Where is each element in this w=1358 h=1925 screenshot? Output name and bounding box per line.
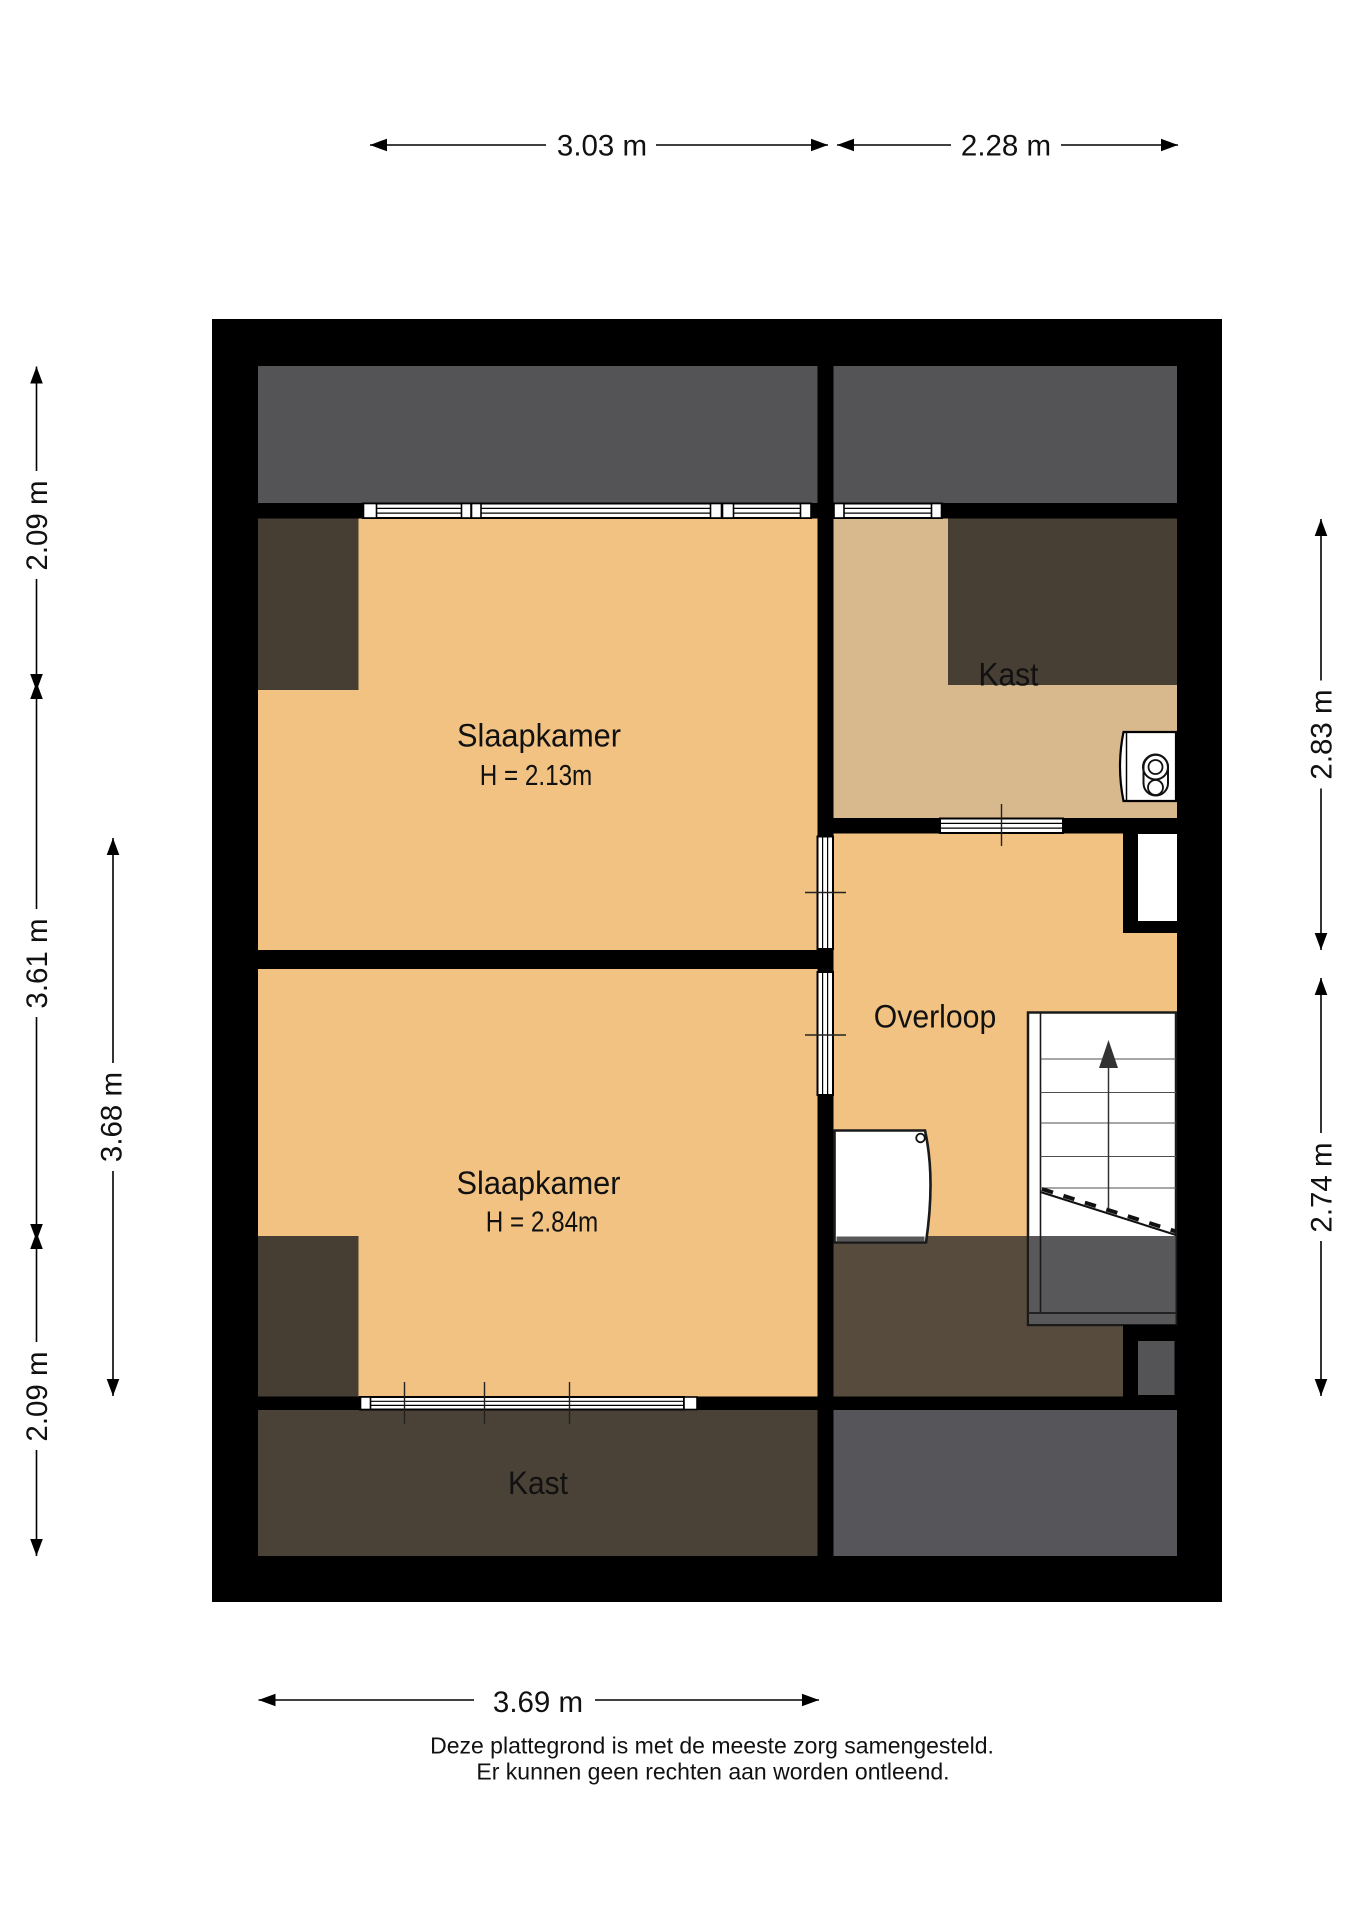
svg-text:3.68 m: 3.68 m bbox=[96, 1072, 129, 1162]
svg-text:2.74 m: 2.74 m bbox=[1306, 1142, 1339, 1232]
svg-text:Er kunnen geen rechten aan wor: Er kunnen geen rechten aan worden ontlee… bbox=[476, 1759, 949, 1785]
svg-text:Slaapkamer: Slaapkamer bbox=[457, 718, 621, 754]
svg-text:3.03 m: 3.03 m bbox=[557, 130, 647, 163]
svg-text:Deze plattegrond is met de mee: Deze plattegrond is met de meeste zorg s… bbox=[430, 1733, 994, 1759]
svg-text:3.69 m: 3.69 m bbox=[493, 1686, 583, 1719]
svg-text:Overloop: Overloop bbox=[874, 999, 997, 1035]
svg-text:2.28 m: 2.28 m bbox=[961, 130, 1051, 163]
svg-text:Kast: Kast bbox=[979, 657, 1039, 693]
svg-text:H = 2.13m: H = 2.13m bbox=[480, 760, 593, 792]
svg-text:Kast: Kast bbox=[508, 1465, 568, 1501]
svg-text:2.09 m: 2.09 m bbox=[21, 1351, 54, 1441]
svg-text:Slaapkamer: Slaapkamer bbox=[457, 1165, 621, 1201]
svg-text:2.83 m: 2.83 m bbox=[1306, 689, 1339, 779]
svg-text:H = 2.84m: H = 2.84m bbox=[486, 1207, 599, 1239]
svg-text:2.09 m: 2.09 m bbox=[21, 480, 54, 570]
svg-text:3.61 m: 3.61 m bbox=[21, 918, 54, 1008]
